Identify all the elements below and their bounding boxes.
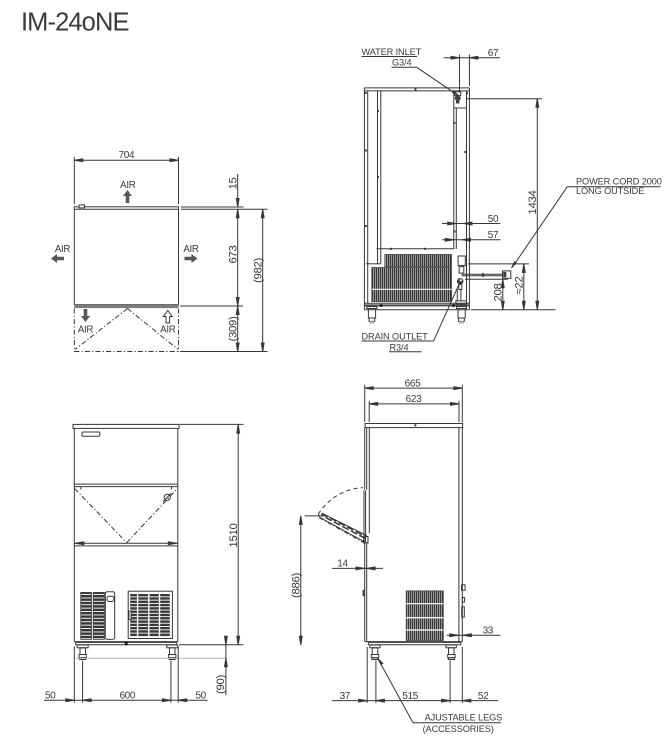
svg-text:14: 14 xyxy=(337,559,348,570)
svg-text:50: 50 xyxy=(45,691,56,702)
svg-text:1510: 1510 xyxy=(228,523,240,547)
svg-text:(886): (886) xyxy=(291,572,303,598)
svg-text:G3/4: G3/4 xyxy=(392,58,412,68)
svg-text:52: 52 xyxy=(478,691,489,702)
svg-text:67: 67 xyxy=(488,48,499,59)
svg-text:15: 15 xyxy=(228,177,240,189)
svg-text:208: 208 xyxy=(493,283,505,301)
svg-text:(982): (982) xyxy=(253,257,265,283)
svg-text:623: 623 xyxy=(406,394,422,405)
svg-text:50: 50 xyxy=(195,691,206,702)
svg-text:LONG OUTSIDE: LONG OUTSIDE xyxy=(576,186,644,196)
svg-text:33: 33 xyxy=(483,626,494,637)
svg-text:POWER CORD 2000: POWER CORD 2000 xyxy=(576,176,662,186)
svg-text:≈22: ≈22 xyxy=(514,276,526,294)
svg-text:515: 515 xyxy=(402,691,418,702)
svg-text:665: 665 xyxy=(405,378,421,389)
svg-text:AJUSTABLE LEGS: AJUSTABLE LEGS xyxy=(425,712,503,722)
svg-text:(309): (309) xyxy=(228,316,240,342)
svg-text:DRAIN OUTLET: DRAIN OUTLET xyxy=(362,331,429,341)
svg-text:(ACCESSORIES): (ACCESSORIES) xyxy=(423,724,494,734)
svg-text:704: 704 xyxy=(119,150,135,161)
svg-text:600: 600 xyxy=(119,691,135,702)
svg-text:50: 50 xyxy=(488,214,499,225)
svg-text:AIR: AIR xyxy=(55,244,71,255)
svg-text:R3/4: R3/4 xyxy=(390,342,409,352)
svg-text:1434: 1434 xyxy=(527,190,539,214)
svg-text:WATER INLET: WATER INLET xyxy=(362,47,422,57)
svg-text:AIR: AIR xyxy=(78,325,94,336)
svg-text:673: 673 xyxy=(228,245,240,263)
svg-text:AIR: AIR xyxy=(183,244,199,255)
svg-text:AIR: AIR xyxy=(160,325,176,336)
svg-text:37: 37 xyxy=(340,691,351,702)
svg-text:57: 57 xyxy=(488,230,499,241)
svg-text:(90): (90) xyxy=(215,674,227,694)
svg-text:IM-24oNE: IM-24oNE xyxy=(21,9,129,37)
svg-text:AIR: AIR xyxy=(120,180,136,191)
